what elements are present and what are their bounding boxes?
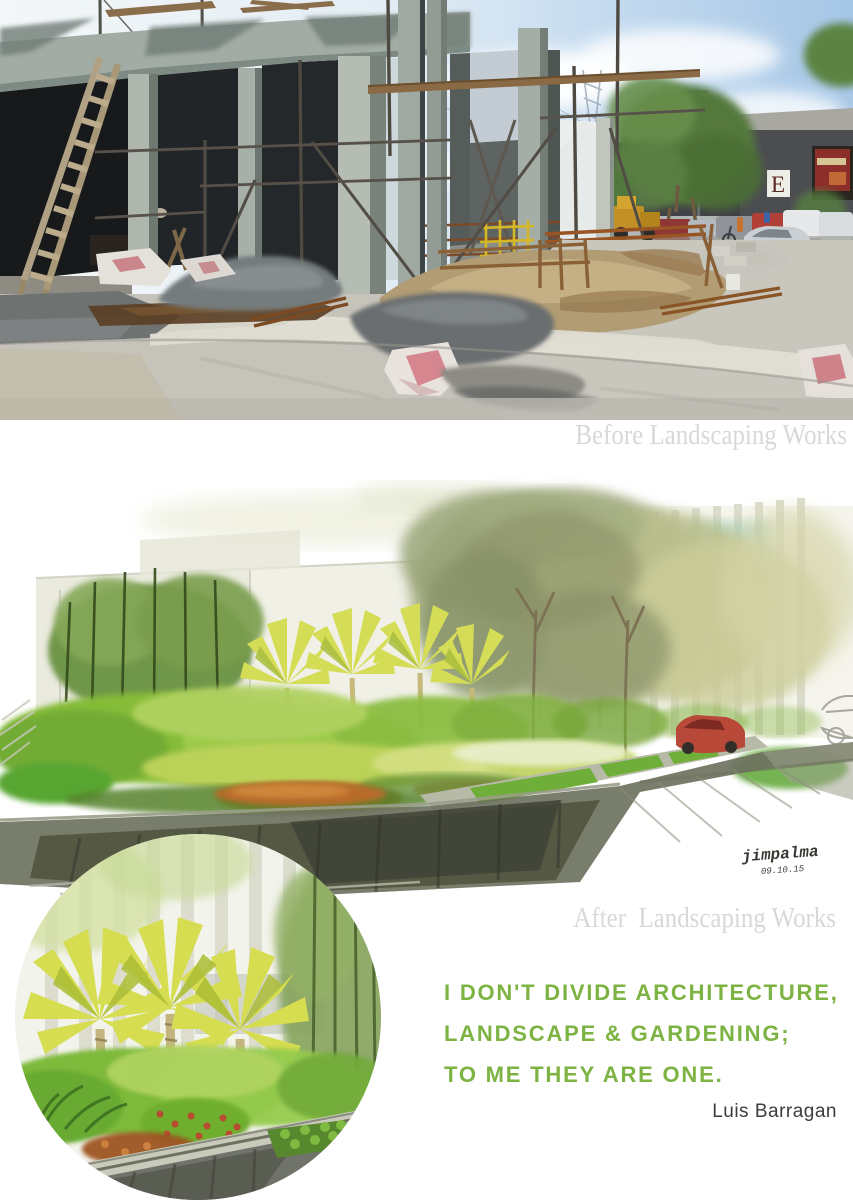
svg-text:E: E: [771, 172, 785, 197]
svg-text:09.10.15: 09.10.15: [761, 864, 805, 877]
svg-text:jimpalma: jimpalma: [740, 843, 819, 866]
